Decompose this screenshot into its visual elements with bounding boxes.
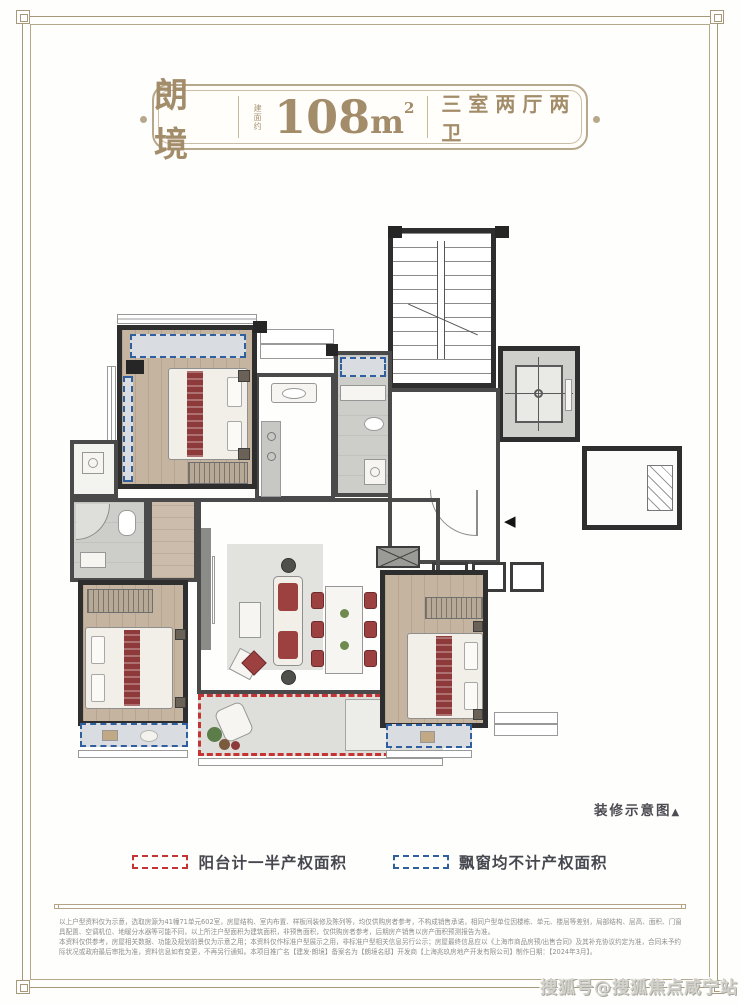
project-name: 朗境 [154, 68, 225, 166]
bay-window [130, 334, 246, 358]
wall-pier [495, 226, 509, 238]
bed-runner [187, 371, 203, 457]
wardrobe [87, 589, 153, 613]
shaft-box [510, 562, 544, 592]
plaque-divider [238, 96, 239, 138]
nightstand [238, 448, 250, 460]
legend-balcony: 阳台计一半产权面积 [132, 851, 347, 873]
bay-window [80, 723, 188, 747]
elevator-center-mark [534, 389, 543, 398]
wardrobe [188, 462, 248, 484]
frame-corner-ornament [710, 10, 724, 24]
floor-plan: ◀ [70, 226, 686, 782]
divider-end-ornament [681, 904, 686, 909]
pillow [464, 682, 478, 710]
vanity-counter [271, 383, 317, 403]
bay-decor [102, 730, 118, 741]
dining-chair [311, 592, 324, 609]
caption-arrow-icon: ▲ [672, 807, 682, 818]
legend-balcony-label: 阳台计一半产权面积 [198, 851, 347, 873]
bed-runner [124, 630, 140, 706]
watermark: 搜狐号@搜狐焦点咸宁站 [540, 973, 738, 998]
hallway [148, 498, 198, 582]
wall-pier [253, 321, 267, 333]
sofa-cushion [278, 583, 298, 611]
side-table [281, 670, 296, 685]
bed [85, 627, 173, 709]
side-table [281, 558, 296, 573]
dining-chair [364, 621, 377, 638]
shower [76, 504, 110, 540]
plan-caption: 装修示意图▲ [594, 799, 704, 819]
table-plant [340, 641, 349, 650]
laundry-nook [70, 440, 118, 498]
stair-rail [437, 241, 445, 359]
coffee-table [239, 602, 261, 638]
legend: 阳台计一半产权面积 飘窗均不计产权面积 [0, 851, 740, 873]
disclaimer-line: 本资料仅供参考，房屋相关数据、功能及规划前景仅为示意之用；本资料仅作标准户型展示… [59, 937, 681, 947]
divider-end-ornament [54, 904, 59, 909]
wall-pier [326, 344, 338, 356]
bed [168, 368, 248, 460]
nightstand [175, 697, 186, 708]
disclaimer: 以上户型资料仅为示意，选取房源为41幢71单元602室，房屋结构、室内布置、样板… [59, 917, 681, 957]
nightstand [175, 629, 186, 640]
cabinet-x [376, 546, 420, 568]
window [494, 712, 558, 736]
wall-pier [388, 226, 402, 238]
plant [231, 741, 240, 750]
bedroom-3 [380, 570, 488, 728]
disclaimer-line: 际状况或政府最后审批为准，资料信息如有变更，不再另行通知。本项目推广名【建发·朗… [59, 947, 681, 957]
bed [407, 633, 483, 719]
wall-pier [126, 360, 144, 374]
dining-chair [311, 621, 324, 638]
kitchen-counter [261, 421, 281, 497]
toilet [118, 510, 136, 536]
plant [219, 739, 230, 750]
bay-decor [420, 731, 435, 743]
window [78, 750, 188, 758]
table-plant [340, 609, 349, 618]
window [260, 329, 334, 359]
area-prefix: 建面约 [252, 104, 261, 131]
tv [212, 556, 215, 624]
footer-divider [58, 904, 682, 909]
nightstand [473, 709, 483, 720]
washer-door [88, 458, 98, 468]
washing-machine [82, 452, 104, 474]
burner [267, 432, 276, 441]
layout-label: 三室两厅两卫 [441, 88, 586, 146]
dining-chair [311, 650, 324, 667]
area-value: 108m2 [274, 94, 414, 140]
wardrobe [425, 597, 483, 619]
window [198, 758, 443, 766]
frame-corner-ornament [16, 10, 30, 24]
plaque-divider [427, 96, 428, 138]
disclaimer-line: 具配置、空调机位、地暖分水器等可能不同，以上所注户型面积为建筑面积，非预售面积，… [59, 927, 681, 937]
bathroom-master [70, 498, 148, 582]
dining-table [325, 586, 363, 674]
bay-window [340, 357, 386, 377]
louver-window [647, 465, 673, 511]
pillow [227, 421, 242, 451]
plaque-side-ornament [593, 116, 600, 123]
washer-door [370, 467, 380, 477]
elevator-door [565, 379, 572, 411]
bay-window [123, 376, 133, 482]
burner [267, 452, 276, 461]
plaque-side-ornament [140, 116, 147, 123]
entry-direction-icon: ◀ [504, 514, 516, 529]
bath-vanity [80, 552, 106, 568]
bed-runner [436, 636, 452, 716]
bathroom-1 [334, 351, 392, 497]
blue-dashed-box-icon [393, 855, 449, 869]
sofa [273, 576, 303, 666]
window [117, 314, 257, 324]
frame-corner-ornament [16, 980, 30, 994]
dining-chair [364, 592, 377, 609]
sofa-cushion [278, 631, 298, 659]
corridor [255, 373, 335, 500]
nightstand [238, 370, 250, 382]
bath-vanity [340, 385, 386, 401]
tv-cabinet [201, 528, 211, 650]
bedroom-2 [117, 325, 257, 489]
entry-door-leaf [476, 490, 478, 536]
nightstand [473, 621, 483, 632]
stairwell [388, 228, 496, 388]
toilet [364, 417, 384, 431]
utility-room [582, 446, 682, 530]
disclaimer-line: 以上户型资料仅为示意，选取房源为41幢71单元602室，房屋结构、室内布置、样板… [59, 917, 681, 927]
bay-window [386, 724, 472, 748]
pillow [464, 642, 478, 670]
pillow [91, 636, 105, 664]
red-dashed-box-icon [132, 855, 188, 869]
legend-baywindow-label: 飘窗均不计产权面积 [459, 851, 608, 873]
washing-machine [364, 459, 386, 485]
window [386, 750, 472, 758]
dining-chair [364, 650, 377, 667]
bay-decor [140, 730, 158, 742]
elevator [498, 346, 580, 442]
bedroom-master [78, 580, 188, 726]
sink-basin [282, 388, 306, 399]
legend-baywindow: 飘窗均不计产权面积 [393, 851, 608, 873]
title-plaque: 朗境 建面约 108m2 三室两厅两卫 [152, 84, 588, 150]
pillow [91, 674, 105, 702]
